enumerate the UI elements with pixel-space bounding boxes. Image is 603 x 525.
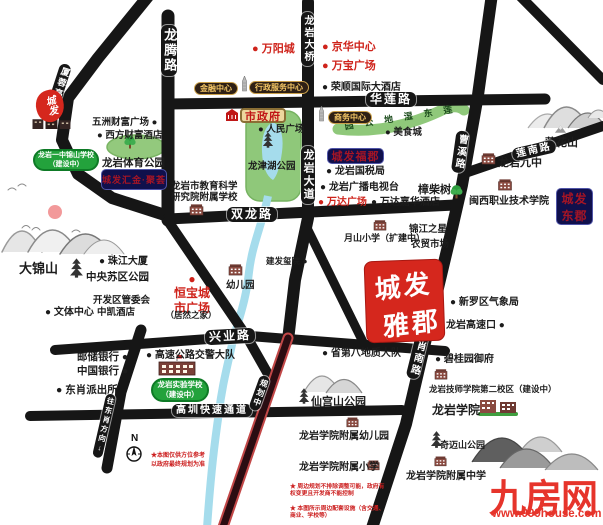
poi-label-22: 中央苏区公园	[86, 271, 149, 284]
poi-label-1: ● 京华中心	[322, 41, 376, 54]
poi-label-36: 仙宫山公园	[311, 396, 366, 409]
poi-label-42: 中国银行 ●	[77, 365, 128, 378]
poi-label-15: 闽西职业技术学院	[469, 196, 549, 208]
poi-label-9: 龙岩市教育科学 研究院附属学校	[171, 181, 238, 204]
badge-3: 市政府	[240, 108, 286, 123]
poi-label-8: 龙岩体育公园	[102, 157, 165, 170]
poi-label-33: ● 碧桂园御府	[435, 354, 494, 366]
map-label-layer: ● 万阳城● 京华中心● 万宝广场● 荣顺国际大酒店五洲财富广场 ●● 西方财富…	[0, 0, 603, 525]
badge-2: 商务中心	[328, 111, 372, 124]
compass-north-label: N	[131, 433, 138, 444]
poi-label-45: 大锦山	[19, 261, 58, 277]
badge-6: 城发 东郡	[556, 188, 593, 225]
poi-label-28: 幼儿园	[226, 280, 255, 291]
watermark-url: www.999house.com	[492, 508, 602, 520]
poi-label-41: 邮储银行 ●	[77, 351, 128, 364]
poi-label-35: 龙岩学院	[432, 403, 480, 417]
poi-label-44: ● 高速公路交警大队	[146, 350, 235, 362]
badge-1: 行政服务中心	[249, 81, 309, 94]
badge-5: 城发福郡	[327, 148, 384, 164]
badge-4: 城发汇金·聚荟	[101, 169, 167, 190]
poi-label-31: 龙岩高速口 ●	[446, 320, 505, 332]
poi-label-40: 龙岩学院附属中学	[406, 471, 486, 483]
poi-label-26: ● 恒宝城 市广场	[170, 272, 214, 315]
road-label-6: 兴业路	[205, 328, 256, 346]
compass-icon	[124, 444, 144, 464]
poi-label-34: 龙岩技师学院第二校区（建设中）	[429, 384, 557, 394]
poi-label-13: ● 万达嘉华酒店	[371, 197, 440, 209]
poi-label-25: 中凯酒店	[97, 307, 135, 318]
compass-note: ★本图仅供方位参考 以政府最终规划为准	[151, 452, 205, 470]
poi-label-30: ● 新罗区气象局	[450, 297, 519, 309]
disclaimer-line-0: ★ 周边规划不排除调整可能，政府有权变更且开发商不能控制	[290, 484, 390, 498]
road-label-3: 龙岩大道	[301, 146, 315, 204]
poi-label-32: ● 省第八地质大队	[322, 348, 401, 360]
chengfa-logo-text: 城发	[40, 94, 59, 117]
disclaimer-line-1: ★ 本图所示周边配套设施（含交通、商业、学校等）	[290, 506, 390, 520]
badge-0: 金融中心	[194, 82, 238, 95]
road-label-9: 曹溪路	[451, 130, 470, 173]
badge-7: 龙岩一中锦山学校 （建设中）	[33, 149, 99, 171]
poi-label-46: 龙津湖公园	[248, 161, 296, 172]
poi-label-6: ● 人民广场	[258, 124, 304, 135]
road-label-0: 龙腾路	[161, 25, 177, 76]
road-label-11: 往东肖方向↓	[92, 393, 116, 458]
poi-label-11: ● 龙岩广播电视台	[320, 182, 399, 194]
poi-label-10: ● 龙岩国税局	[326, 166, 385, 178]
road-label-8: 高圳快速通道	[172, 404, 252, 417]
poi-label-24: ● 文体中心	[45, 307, 94, 319]
disclaimer-block: ★ 周边规划不排除调整可能，政府有权变更且开发商不能控制★ 本图所示周边配套设施…	[290, 484, 390, 525]
poi-label-2: ● 万宝广场	[322, 60, 376, 73]
poi-label-39: 龙岩学院附属小学	[299, 462, 379, 474]
badge-8: 龙岩实验学校 （建设中）	[151, 378, 209, 402]
poi-label-20: 农贸市场	[411, 239, 449, 250]
poi-label-0: ● 万阳城	[252, 43, 295, 56]
project-marker-chengfa-yajun: 城发 雅郡	[365, 260, 445, 343]
poi-label-38: 奇迈山公园	[440, 440, 485, 451]
road-label-4: 华莲路	[366, 92, 416, 107]
road-label-2: 龙岩大桥	[301, 12, 314, 66]
poi-label-19: 锦江之星	[409, 224, 447, 235]
location-map: ● 万阳城● 京华中心● 万宝广场● 荣顺国际大酒店五洲财富广场 ●● 西方财富…	[0, 0, 603, 525]
poi-label-12: ● 万达广场	[318, 197, 367, 209]
poi-label-21: ● 珠江大厦	[99, 256, 148, 268]
poi-label-7: ● 美食城	[385, 127, 422, 138]
road-label-5: 双龙路	[227, 207, 277, 222]
poi-label-14: 樟柴树	[418, 184, 451, 197]
road-label-12: 规划中	[248, 374, 270, 412]
poi-label-27: （居然之家）	[164, 310, 218, 320]
poi-label-29: 建发玺院 ●	[266, 256, 308, 266]
poi-label-23: 开发区管委会	[93, 295, 150, 306]
project-name-line2: 雅郡	[382, 300, 444, 344]
poi-label-37: 龙岩学院附属幼儿园	[299, 431, 389, 443]
poi-label-4: 五洲财富广场 ●	[92, 117, 157, 128]
poi-label-5: ● 西方财富酒店	[97, 130, 162, 141]
